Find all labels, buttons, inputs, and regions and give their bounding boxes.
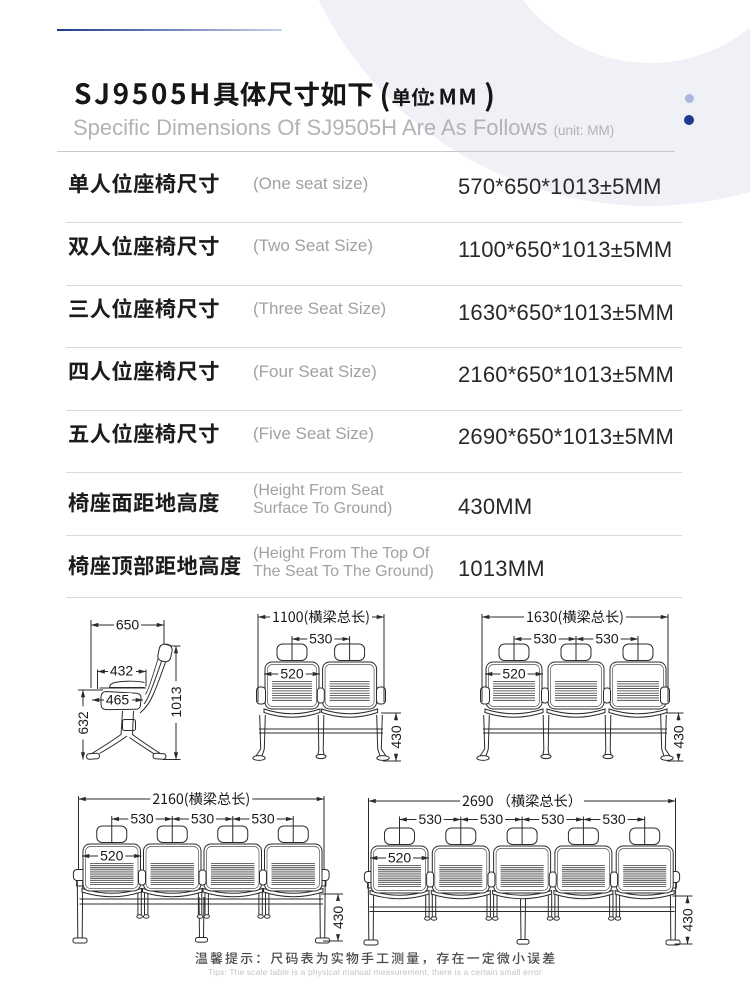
svg-text:530: 530: [480, 811, 504, 827]
svg-text:530: 530: [602, 811, 626, 827]
svg-text:530: 530: [541, 811, 565, 827]
svg-text:530: 530: [309, 631, 333, 647]
svg-text:520: 520: [280, 666, 304, 682]
svg-text:1013: 1013: [168, 686, 184, 717]
svg-text:530: 530: [130, 811, 154, 827]
svg-text:530: 530: [191, 811, 215, 827]
svg-text:530: 530: [418, 811, 442, 827]
svg-text:430: 430: [330, 906, 346, 930]
svg-text:430: 430: [388, 725, 404, 749]
svg-text:430: 430: [671, 725, 687, 749]
svg-text:520: 520: [502, 666, 526, 682]
svg-text:432: 432: [110, 663, 134, 679]
svg-text:530: 530: [533, 631, 557, 647]
svg-text:430: 430: [680, 908, 696, 932]
svg-text:530: 530: [251, 811, 275, 827]
svg-text:520: 520: [100, 848, 124, 864]
svg-text:650: 650: [116, 617, 140, 633]
svg-text:465: 465: [106, 692, 130, 708]
svg-text:530: 530: [595, 631, 619, 647]
svg-text:520: 520: [388, 850, 412, 866]
svg-text:632: 632: [75, 711, 91, 735]
